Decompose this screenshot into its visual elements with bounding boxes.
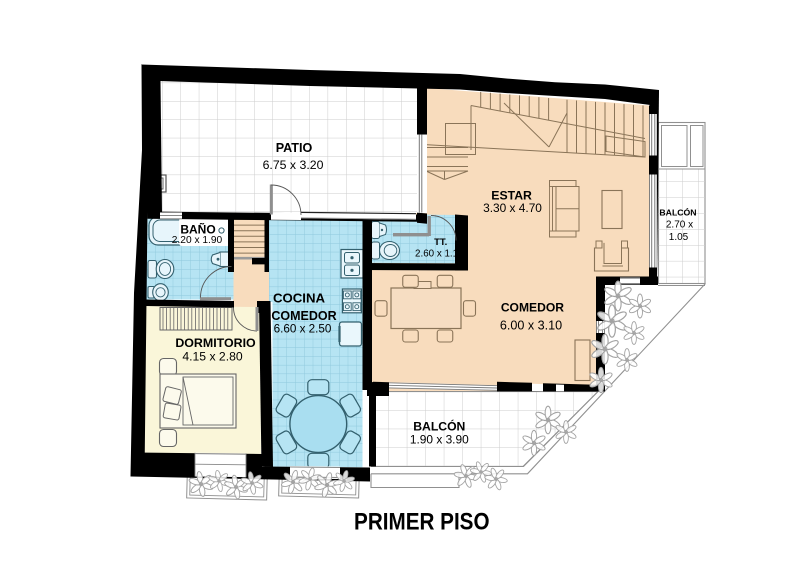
svg-text:6.75 x 3.20: 6.75 x 3.20 — [263, 158, 324, 172]
svg-text:3.30 x 4.70: 3.30 x 4.70 — [483, 201, 542, 215]
svg-text:COCINA: COCINA — [273, 291, 325, 306]
svg-text:6.00 x 3.10: 6.00 x 3.10 — [500, 319, 562, 333]
svg-text:PATIO: PATIO — [276, 141, 313, 155]
svg-text:BALCÓN: BALCÓN — [413, 419, 465, 434]
svg-text:DORMITORIO: DORMITORIO — [175, 336, 256, 350]
svg-text:TT.: TT. — [434, 237, 447, 248]
svg-text:2.20 x 1.90: 2.20 x 1.90 — [172, 235, 223, 246]
svg-text:COMEDOR: COMEDOR — [501, 301, 564, 315]
svg-text:BALCÓN: BALCÓN — [659, 207, 696, 218]
svg-text:2.70 x: 2.70 x — [666, 220, 693, 231]
svg-text:6.60 x 2.50: 6.60 x 2.50 — [274, 323, 332, 336]
svg-text:4.15 x 2.80: 4.15 x 2.80 — [182, 350, 243, 364]
svg-text:1.05: 1.05 — [669, 232, 689, 243]
svg-text:1.90 x 3.90: 1.90 x 3.90 — [410, 433, 469, 447]
svg-text:2.60 x 1.10: 2.60 x 1.10 — [415, 248, 464, 259]
svg-text:COMEDOR: COMEDOR — [271, 309, 336, 323]
svg-text:PRIMER PISO: PRIMER PISO — [354, 509, 490, 536]
